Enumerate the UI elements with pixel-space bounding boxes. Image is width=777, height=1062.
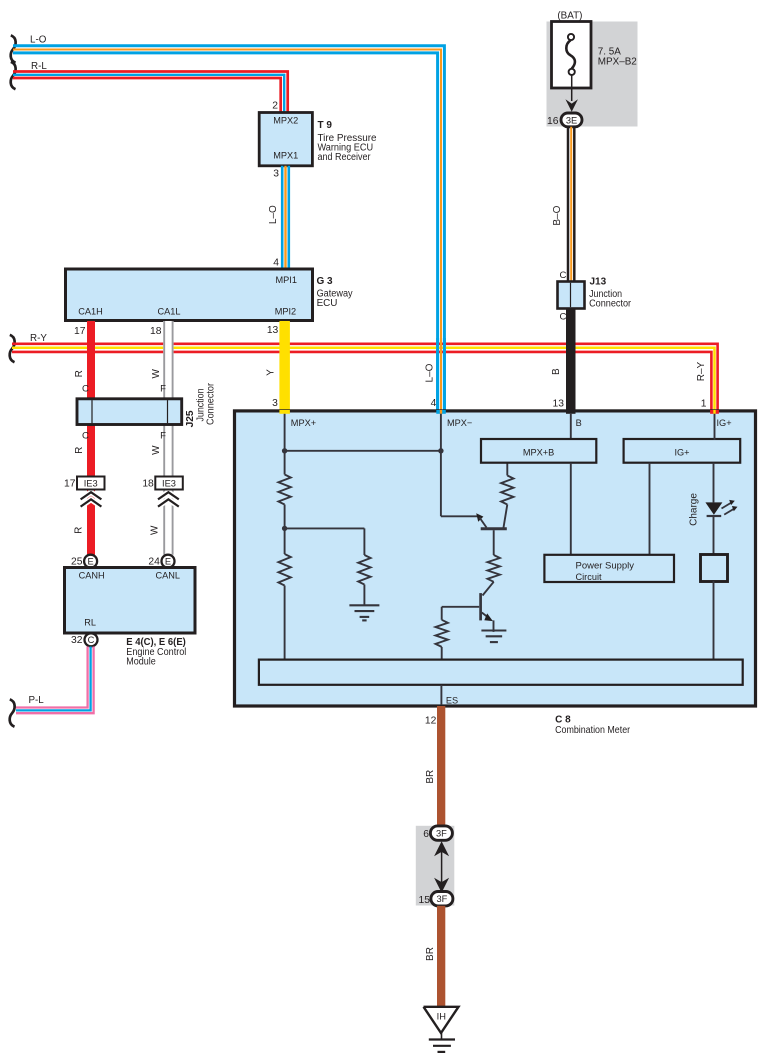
svg-text:IH: IH (437, 1012, 446, 1022)
svg-text:CA1H: CA1H (78, 307, 103, 317)
svg-text:W: W (151, 369, 162, 379)
svg-text:17: 17 (64, 479, 76, 490)
svg-text:J25: J25 (185, 410, 196, 427)
svg-text:18: 18 (150, 326, 162, 337)
svg-text:IE3: IE3 (84, 478, 98, 488)
svg-text:Y: Y (266, 369, 277, 376)
svg-text:13: 13 (267, 325, 279, 336)
svg-text:MPX2: MPX2 (273, 116, 298, 126)
svg-text:Connector: Connector (205, 382, 216, 425)
svg-text:ECU: ECU (317, 298, 338, 309)
svg-text:C: C (560, 311, 567, 322)
svg-text:IG+: IG+ (717, 418, 732, 428)
svg-text:Power Supply: Power Supply (576, 560, 635, 570)
svg-text:Connector: Connector (589, 299, 632, 310)
svg-text:E: E (87, 557, 93, 567)
svg-text:CANH: CANH (79, 570, 105, 580)
svg-text:C: C (88, 635, 95, 645)
svg-text:CANL: CANL (156, 570, 181, 580)
svg-text:Combination Meter: Combination Meter (555, 725, 631, 736)
svg-text:MPI1: MPI1 (276, 275, 297, 285)
svg-text:MPX–B2: MPX–B2 (598, 57, 637, 68)
svg-text:C: C (560, 270, 567, 281)
svg-text:25: 25 (71, 556, 83, 567)
svg-text:3F: 3F (436, 829, 447, 839)
svg-text:MPX−: MPX− (447, 418, 472, 428)
svg-text:P-L: P-L (29, 695, 45, 706)
svg-text:3: 3 (273, 168, 279, 179)
svg-text:16: 16 (547, 116, 559, 127)
svg-text:C 8: C 8 (555, 714, 571, 725)
svg-text:R–Y: R–Y (696, 361, 707, 381)
svg-text:15: 15 (419, 895, 431, 906)
svg-text:12: 12 (425, 715, 437, 726)
svg-text:13: 13 (553, 398, 565, 409)
svg-text:IE3: IE3 (162, 478, 176, 488)
svg-text:32: 32 (71, 635, 83, 646)
svg-text:CA1L: CA1L (158, 307, 181, 317)
svg-text:L–O: L–O (268, 205, 279, 224)
svg-text:3F: 3F (436, 894, 447, 904)
svg-text:1: 1 (701, 398, 707, 409)
svg-text:B–O: B–O (552, 205, 563, 225)
svg-text:3: 3 (272, 398, 278, 409)
svg-text:R: R (74, 447, 85, 454)
svg-text:L-O: L-O (30, 35, 47, 46)
svg-text:6: 6 (423, 829, 429, 840)
svg-text:F: F (160, 430, 166, 441)
svg-text:and Receiver: and Receiver (318, 152, 372, 163)
svg-text:BR: BR (425, 947, 436, 961)
svg-text:W: W (151, 445, 162, 455)
svg-text:B: B (551, 368, 562, 375)
svg-text:F: F (160, 383, 166, 394)
svg-text:MPX+: MPX+ (291, 418, 316, 428)
svg-text:Module: Module (126, 657, 156, 668)
svg-text:RL: RL (84, 617, 96, 627)
svg-text:4: 4 (273, 258, 279, 269)
svg-text:(BAT): (BAT) (557, 11, 582, 22)
svg-text:R-L: R-L (31, 61, 47, 72)
svg-text:Charge: Charge (689, 493, 700, 526)
svg-text:17: 17 (74, 326, 86, 337)
svg-text:R: R (74, 527, 85, 534)
svg-text:R: R (74, 370, 85, 377)
svg-text:MPI2: MPI2 (275, 307, 296, 317)
svg-text:MPX1: MPX1 (273, 151, 298, 161)
svg-text:MPX+B: MPX+B (523, 447, 554, 457)
svg-text:24: 24 (148, 556, 160, 567)
svg-text:ES: ES (446, 696, 458, 706)
svg-text:L–O: L–O (425, 363, 436, 382)
svg-text:2: 2 (272, 101, 278, 112)
svg-text:18: 18 (142, 479, 154, 490)
svg-text:3E: 3E (566, 115, 577, 125)
svg-text:C: C (82, 383, 89, 394)
svg-text:R-Y: R-Y (30, 333, 47, 344)
svg-text:B: B (576, 418, 582, 428)
svg-text:J13: J13 (590, 277, 607, 288)
svg-text:E: E (165, 557, 171, 567)
svg-text:W: W (150, 525, 161, 535)
svg-text:T 9: T 9 (318, 120, 333, 131)
svg-text:IG+: IG+ (674, 447, 689, 457)
svg-text:4: 4 (431, 398, 437, 409)
svg-text:C: C (82, 430, 89, 441)
svg-text:BR: BR (425, 770, 436, 784)
svg-text:Circuit: Circuit (576, 572, 602, 582)
svg-text:G 3: G 3 (317, 276, 334, 287)
